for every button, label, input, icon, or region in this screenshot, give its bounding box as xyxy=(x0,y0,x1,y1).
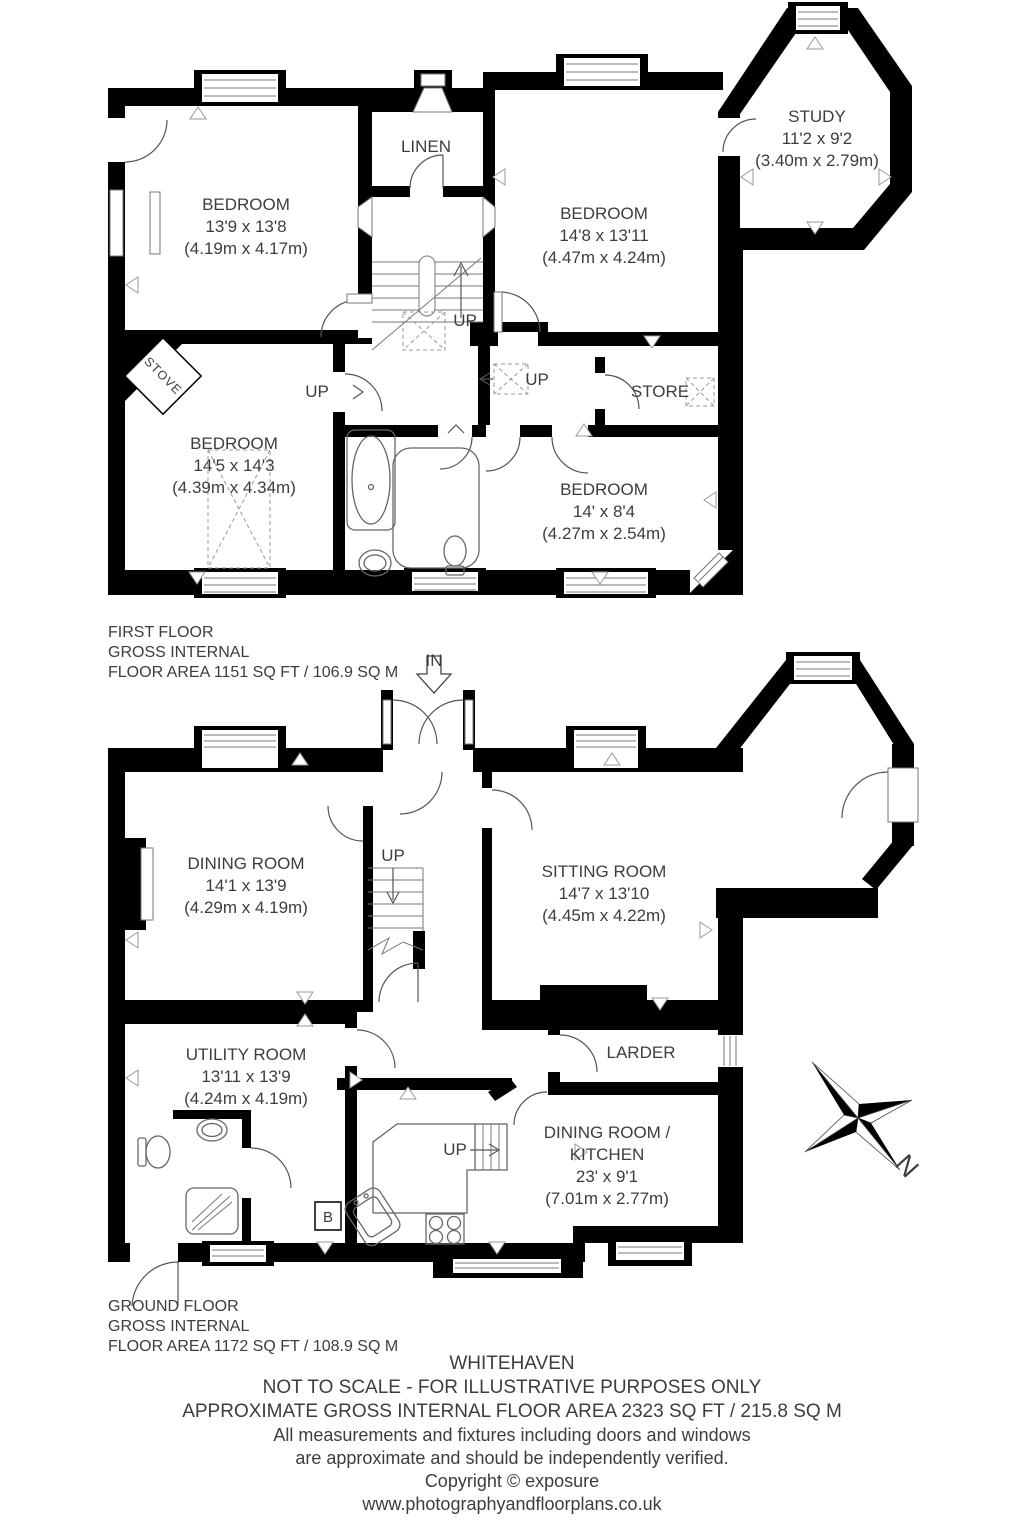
summary-line: GROSS INTERNAL xyxy=(108,1317,398,1337)
summary-line: FLOOR AREA 1151 SQ FT / 106.9 SQ M xyxy=(108,663,398,683)
room-size-ft: 13'11 x 13'9 xyxy=(184,1066,308,1088)
room-name: KITCHEN xyxy=(544,1144,671,1166)
room-name: STUDY xyxy=(755,106,879,128)
summary-line: GROUND FLOOR xyxy=(108,1297,398,1317)
summary-line: FIRST FLOOR xyxy=(108,623,398,643)
up-label-kitchen-steps: UP xyxy=(443,1139,467,1161)
room-name: STORE xyxy=(631,381,689,403)
room-size-ft: 14'1 x 13'9 xyxy=(184,875,308,897)
room-label-linen: LINEN xyxy=(401,136,451,158)
ground-floor-summary: GROUND FLOOR GROSS INTERNAL FLOOR AREA 1… xyxy=(108,1297,398,1357)
up-label-main-stairs: UP xyxy=(453,310,477,332)
room-name: UTILITY ROOM xyxy=(184,1044,308,1066)
room-label-store: STORE xyxy=(631,381,689,403)
footer-copyright: Copyright © exposure xyxy=(0,1470,1024,1493)
room-size-ft: 14' x 8'4 xyxy=(542,501,666,523)
floorplan-page: BEDROOM 13'9 x 13'8 (4.19m x 4.17m) LINE… xyxy=(0,0,1024,1536)
room-size-ft: 14'8 x 13'11 xyxy=(542,225,666,247)
property-title: WHITEHAVEN xyxy=(0,1352,1024,1376)
room-name: LARDER xyxy=(607,1042,676,1064)
room-size-ft: 14'5 x 14'3 xyxy=(172,455,296,477)
room-name: BEDROOM xyxy=(542,203,666,225)
room-label-sitting-room: SITTING ROOM 14'7 x 13'10 (4.45m x 4.22m… xyxy=(542,861,667,927)
room-name: LINEN xyxy=(401,136,451,158)
room-size-m: (4.39m x 4.34m) xyxy=(172,477,296,499)
room-label-larder: LARDER xyxy=(607,1042,676,1064)
room-size-ft: 13'9 x 13'8 xyxy=(184,216,308,238)
up-label-bedroom: UP xyxy=(305,381,329,403)
first-floor-summary: FIRST FLOOR GROSS INTERNAL FLOOR AREA 11… xyxy=(108,623,398,683)
boiler-label: B xyxy=(323,1207,333,1229)
room-name: SITTING ROOM xyxy=(542,861,667,883)
footer-line: NOT TO SCALE - FOR ILLUSTRATIVE PURPOSES… xyxy=(0,1376,1024,1400)
footer-url: www.photographyandfloorplans.co.uk xyxy=(0,1493,1024,1516)
room-name: DINING ROOM / xyxy=(544,1122,671,1144)
footer-line: APPROXIMATE GROSS INTERNAL FLOOR AREA 23… xyxy=(0,1400,1024,1424)
room-label-bedroom-front-left: BEDROOM 13'9 x 13'8 (4.19m x 4.17m) xyxy=(184,194,308,260)
up-label-hall-stairs: UP xyxy=(381,845,405,867)
room-name: BEDROOM xyxy=(172,433,296,455)
ground-floor-plan xyxy=(108,652,918,1306)
room-name: BEDROOM xyxy=(184,194,308,216)
room-size-ft: 11'2 x 9'2 xyxy=(755,128,879,150)
first-floor-plan xyxy=(108,2,912,598)
footer-line: are approximate and should be independen… xyxy=(0,1447,1024,1470)
footer-line: All measurements and fixtures including … xyxy=(0,1424,1024,1447)
summary-line: GROSS INTERNAL xyxy=(108,643,398,663)
room-size-ft: 14'7 x 13'10 xyxy=(542,883,667,905)
up-label-landing: UP xyxy=(525,369,549,391)
compass-rose-icon xyxy=(805,1062,912,1170)
room-size-m: (4.29m x 4.19m) xyxy=(184,897,308,919)
room-name: BEDROOM xyxy=(542,479,666,501)
room-size-m: (4.47m x 4.24m) xyxy=(542,247,666,269)
room-size-m: (4.45m x 4.22m) xyxy=(542,905,667,927)
room-size-m: (4.27m x 2.54m) xyxy=(542,523,666,545)
room-size-m: (4.19m x 4.17m) xyxy=(184,238,308,260)
room-size-ft: 23' x 9'1 xyxy=(544,1166,671,1188)
room-label-bedroom-front-right: BEDROOM 14'8 x 13'11 (4.47m x 4.24m) xyxy=(542,203,666,269)
room-name: DINING ROOM xyxy=(184,853,308,875)
footer-disclaimer: WHITEHAVEN NOT TO SCALE - FOR ILLUSTRATI… xyxy=(0,1352,1024,1516)
room-size-m: (4.24m x 4.19m) xyxy=(184,1088,308,1110)
room-label-dining-kitchen: DINING ROOM / KITCHEN 23' x 9'1 (7.01m x… xyxy=(544,1122,671,1210)
entrance-in-label: IN xyxy=(426,650,443,672)
room-label-dining-room: DINING ROOM 14'1 x 13'9 (4.29m x 4.19m) xyxy=(184,853,308,919)
room-size-m: (3.40m x 2.79m) xyxy=(755,150,879,172)
room-label-bedroom-back-right: BEDROOM 14' x 8'4 (4.27m x 2.54m) xyxy=(542,479,666,545)
room-label-utility-room: UTILITY ROOM 13'11 x 13'9 (4.24m x 4.19m… xyxy=(184,1044,308,1110)
room-size-m: (7.01m x 2.77m) xyxy=(544,1188,671,1210)
room-label-bedroom-back-left: BEDROOM 14'5 x 14'3 (4.39m x 4.34m) xyxy=(172,433,296,499)
room-label-study: STUDY 11'2 x 9'2 (3.40m x 2.79m) xyxy=(755,106,879,172)
